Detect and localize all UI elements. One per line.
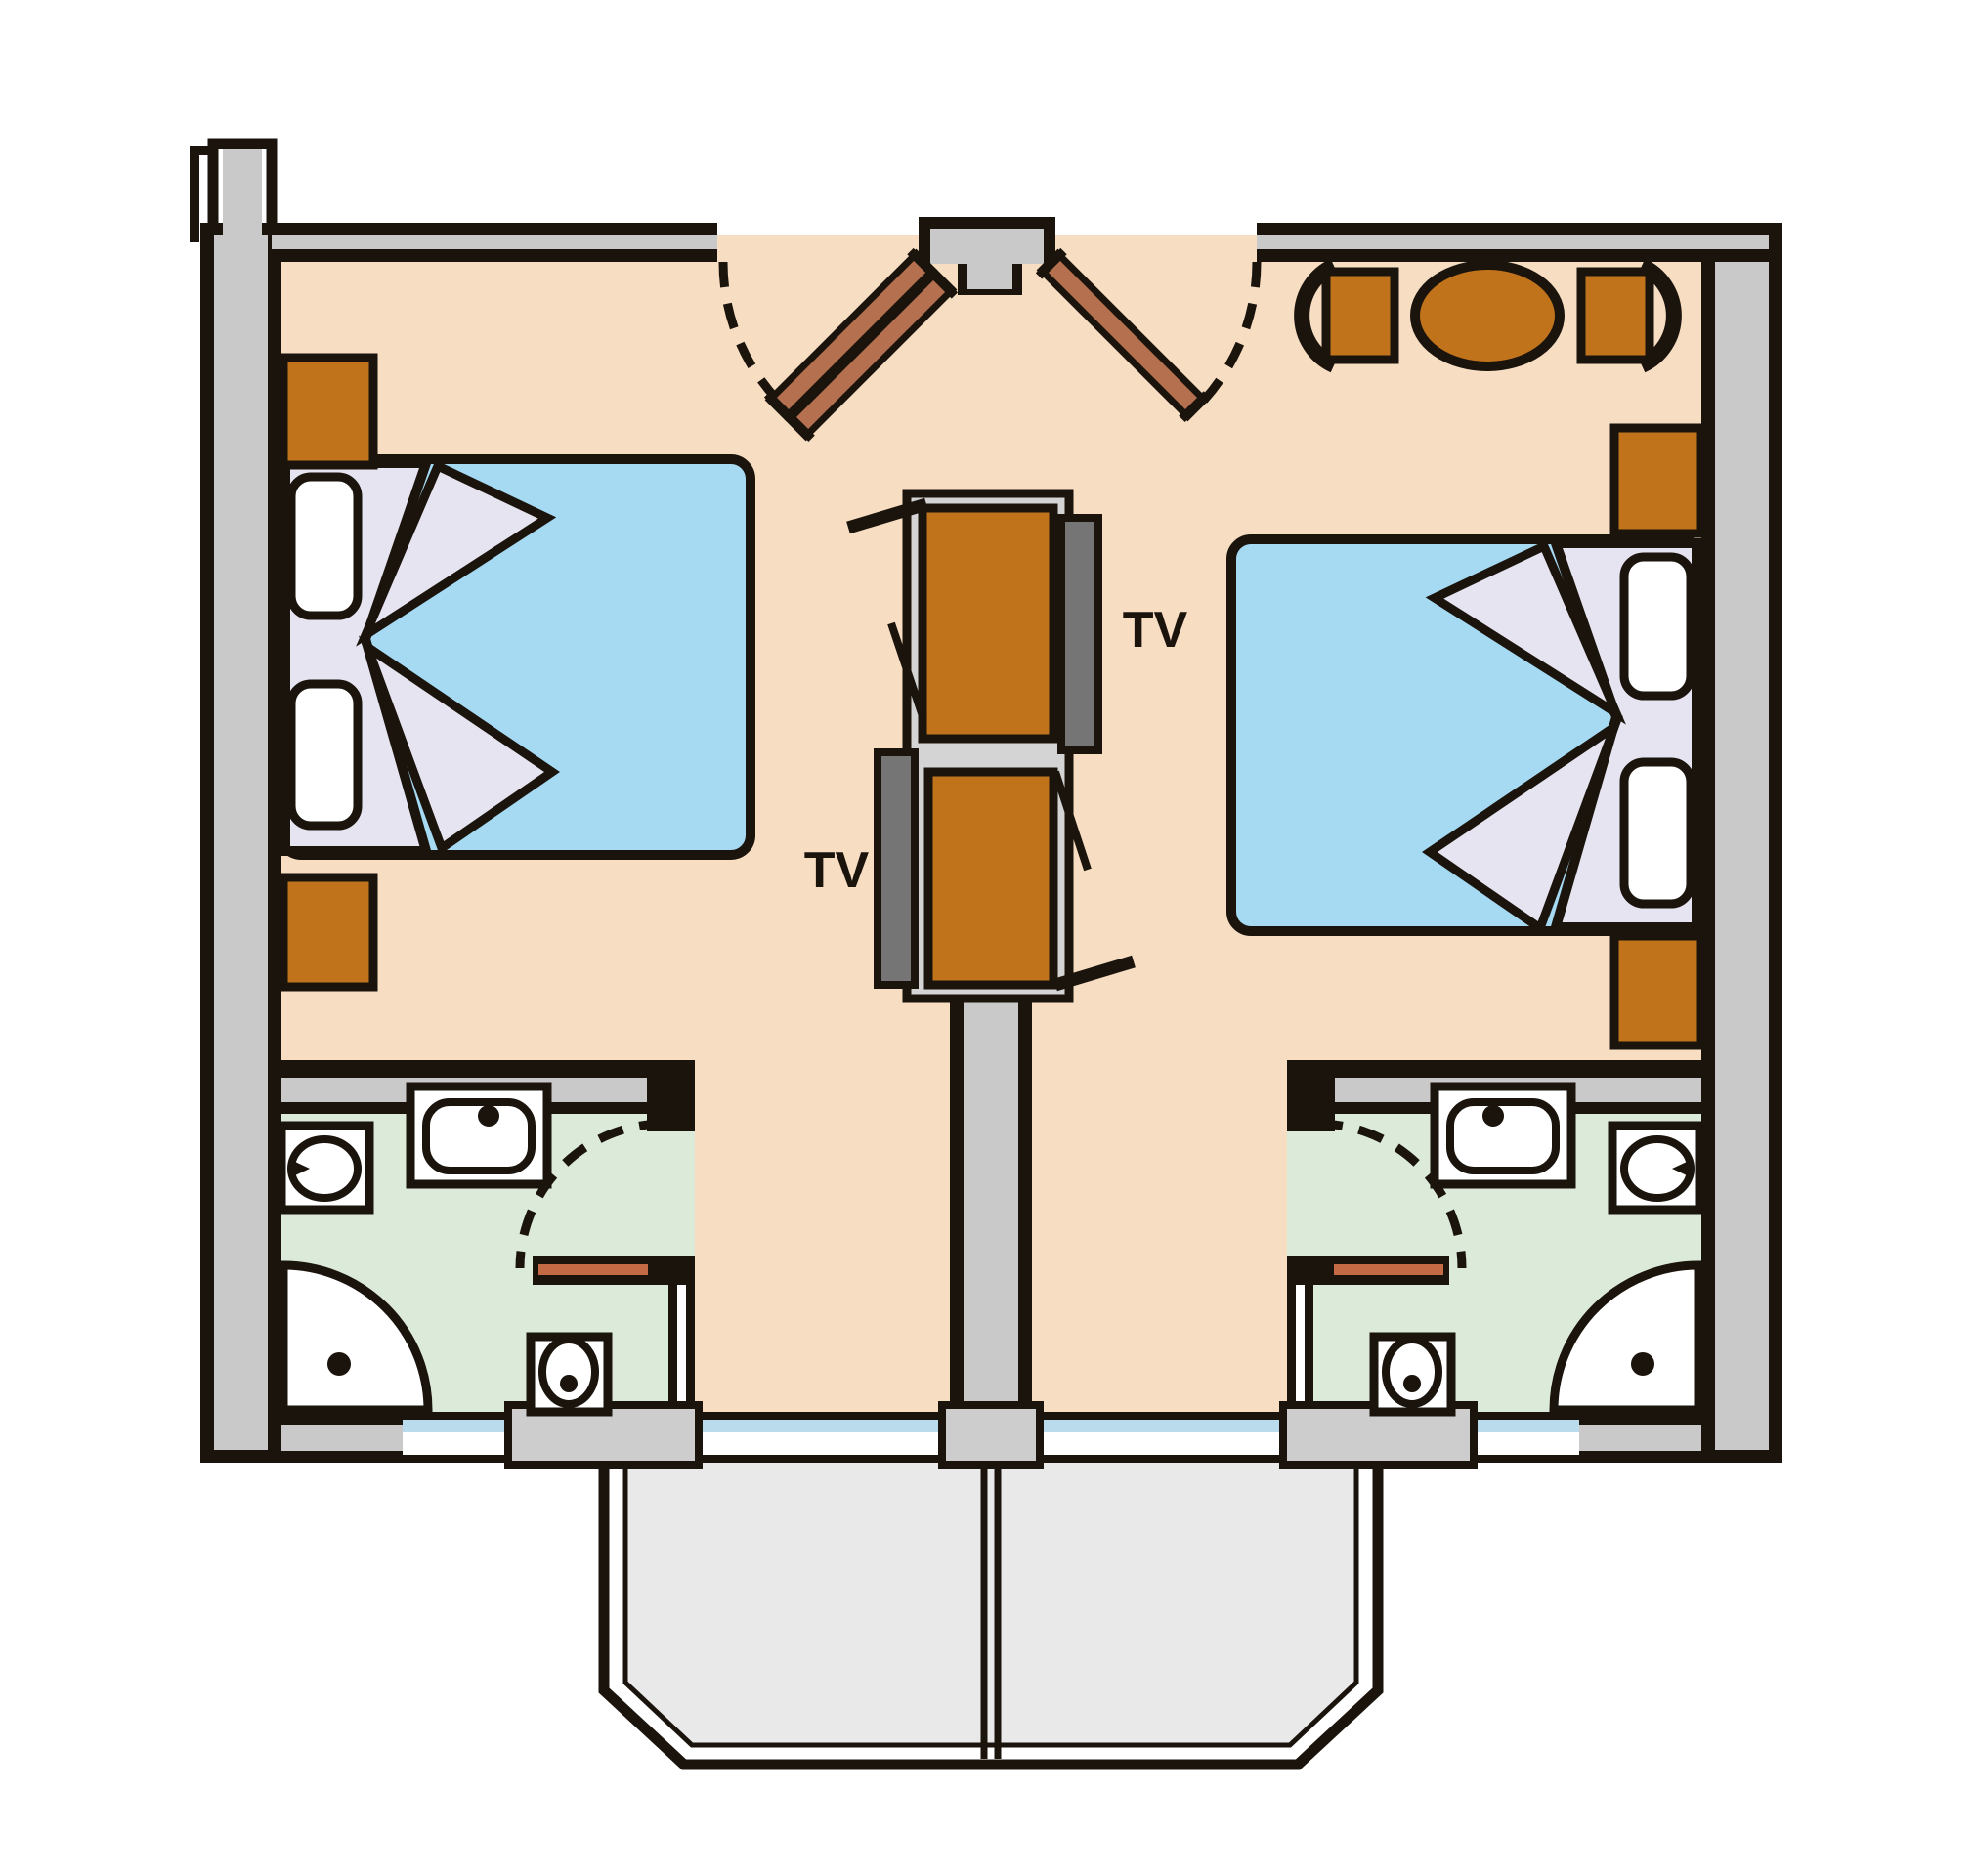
window-glass-icon [403,1420,508,1432]
nightstand-icon [283,877,373,987]
nightstand-icon [283,358,373,465]
window-edge [1040,1455,1283,1463]
wall-core [964,989,1018,1417]
shower-drain-icon [1631,1352,1654,1376]
window-edge [699,1412,942,1420]
window-strip [1474,1412,1579,1463]
sitting-area [1302,265,1674,366]
bathroom-door-leaf [536,1261,651,1278]
tv-screen-icon [878,752,915,985]
window-glass-icon [1040,1420,1283,1432]
floorplan-page: TV TV [0,0,1974,1876]
window-glass-icon [1474,1420,1579,1432]
side-cabinet-icon [1614,428,1701,533]
toilet-drain-icon [1403,1375,1421,1392]
faucet-icon [478,1105,499,1127]
north-wall-left-core [272,235,717,249]
south-wall [200,1405,1782,1465]
window-edge [699,1455,942,1463]
chair-icon [1326,272,1395,360]
chair-icon [1581,272,1650,360]
wall-core [677,1268,686,1421]
east-wall-core [1715,235,1769,1450]
tv-screen-icon [1061,518,1098,750]
stub-tongue-core [967,256,1012,289]
bathroom-door-leaf [1331,1261,1446,1278]
toilet-bowl-icon [1386,1340,1438,1404]
window-edge [1040,1412,1283,1420]
faucet-icon [1482,1105,1504,1127]
pillow-icon [291,684,358,826]
tv-label-right: TV [1123,602,1188,659]
shower-drain-icon [327,1352,351,1376]
middle-partition-wall [950,989,1032,1429]
window-glass-icon [699,1420,942,1432]
toilet-bowl-icon [542,1340,595,1404]
pillow-icon [1624,762,1691,904]
window-edge [1474,1455,1579,1463]
toilet-drain-icon [560,1375,578,1392]
right-bed [1231,539,1700,931]
left-bed [281,459,751,855]
window-strip [1040,1412,1283,1463]
balcony-door-pier [942,1405,1040,1465]
balcony [604,1460,1378,1765]
oval-table-icon [1415,265,1560,366]
tv-cabinet-icon [923,508,1053,739]
floorplan-canvas: TV TV [0,0,1974,1876]
west-wall-core [214,235,268,1450]
north-wall-right-core [1257,235,1769,249]
pillow-icon [1624,557,1691,696]
chimney-core [223,149,262,235]
window-edge [403,1455,508,1463]
pillow-icon [291,477,358,616]
window-strip [699,1412,942,1463]
window-strip [403,1412,508,1463]
side-cabinet-icon [1614,936,1701,1045]
wall-core [1296,1268,1305,1421]
tv-cabinet-icon [928,772,1053,985]
tv-label-left: TV [804,842,870,899]
balcony-deck [625,1460,1356,1745]
